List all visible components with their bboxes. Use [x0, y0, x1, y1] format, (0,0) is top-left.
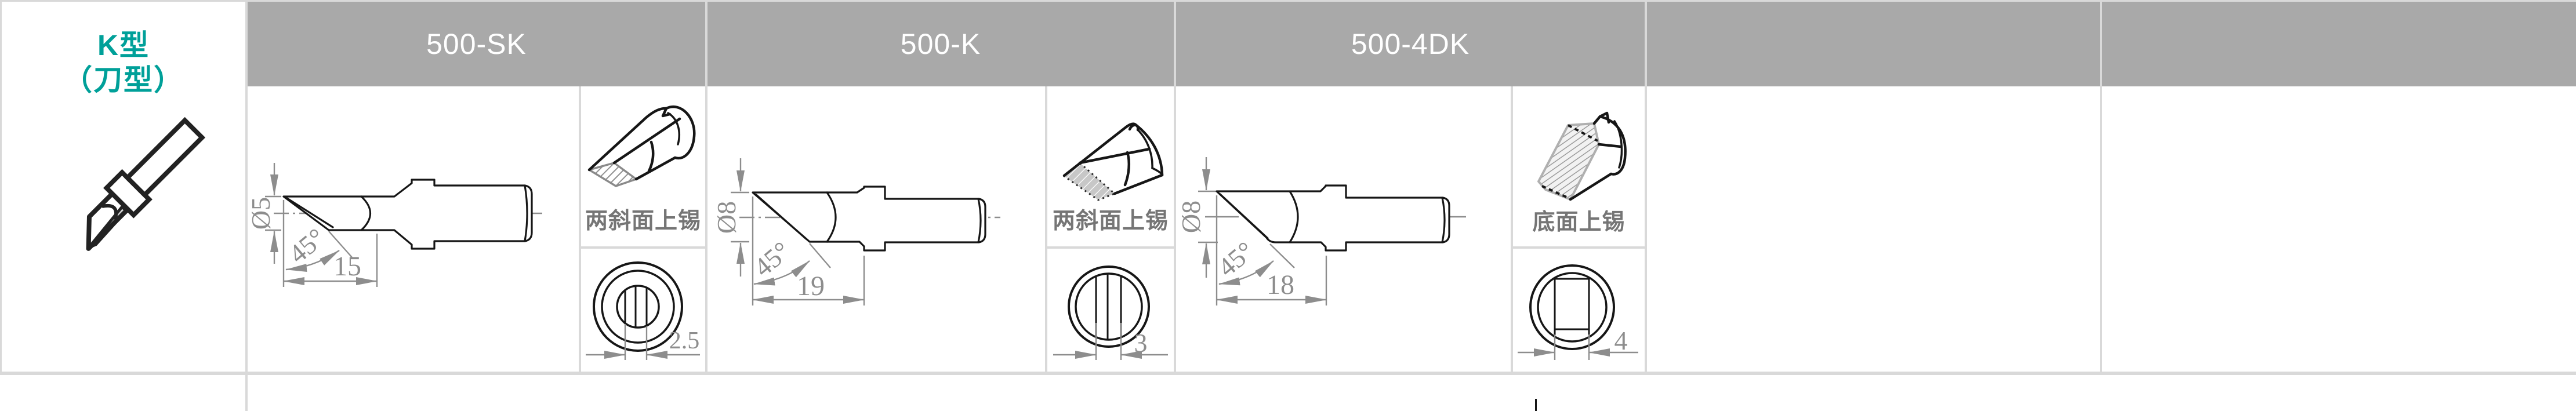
tinning-note-500-k: 两斜面上锡: [1047, 203, 1174, 235]
dim-diameter-label: Ø8: [1176, 201, 1206, 233]
dim-diameter-label: Ø8: [712, 201, 741, 234]
side-view-drawing-500-4dk: Ø8 45° 18: [1176, 86, 1511, 372]
dim-length-label: 19: [797, 271, 825, 301]
dim-flat-width-label: 3: [1134, 328, 1148, 358]
row-type-title: K型 （刀型）: [2, 28, 245, 97]
dim-diameter-label: Ø5: [248, 197, 275, 230]
row-type-line2: （刀型）: [2, 63, 245, 97]
end-view-drawing-500-sk: 2.5: [581, 249, 705, 372]
dim-length-label: 18: [1267, 270, 1294, 300]
row-type-line1: K型: [2, 28, 245, 63]
tip-catalog-table: 500-SK 500-K 500-4DK K型 （刀型）: [0, 0, 2576, 411]
tinning-3d-icon-500-4dk: [1513, 89, 1645, 205]
header-label: 500-SK: [426, 27, 527, 61]
tinning-note-500-4dk: 底面上锡: [1513, 204, 1645, 237]
header-label: 500-4DK: [1351, 27, 1470, 61]
knife-tip-3d-icon: [23, 99, 220, 252]
dim-length-label: 15: [333, 251, 361, 282]
header-label: 500-K: [901, 27, 981, 61]
header-model-500-k: 500-K: [708, 2, 1174, 86]
tinning-note-500-sk: 两斜面上锡: [581, 203, 705, 235]
grid-row-bottom-border: [0, 372, 2576, 375]
side-view-drawing-500-sk: Ø5 45° 15: [248, 86, 579, 372]
dim-angle-label: 45°: [283, 223, 331, 269]
side-view-drawing-500-k: Ø8 45° 19: [708, 86, 1045, 372]
header-empty-1: [1647, 2, 2100, 86]
end-view-drawing-500-k: 3: [1047, 249, 1174, 372]
header-model-500-sk: 500-SK: [248, 2, 705, 86]
end-view-drawing-500-4dk: 4: [1513, 249, 1645, 372]
next-row-drawing-fragment: [1535, 399, 1537, 411]
header-empty-2: [2102, 2, 2576, 86]
header-model-500-4dk: 500-4DK: [1176, 2, 1645, 86]
dim-flat-width-label: 2.5: [669, 328, 700, 354]
dim-angle-label: 45°: [1212, 236, 1260, 282]
dim-angle-label: 45°: [748, 236, 796, 282]
dim-flat-width-label: 4: [1614, 326, 1628, 355]
tinning-3d-icon-500-k: [1047, 89, 1174, 205]
tinning-3d-icon-500-sk: [581, 89, 705, 205]
